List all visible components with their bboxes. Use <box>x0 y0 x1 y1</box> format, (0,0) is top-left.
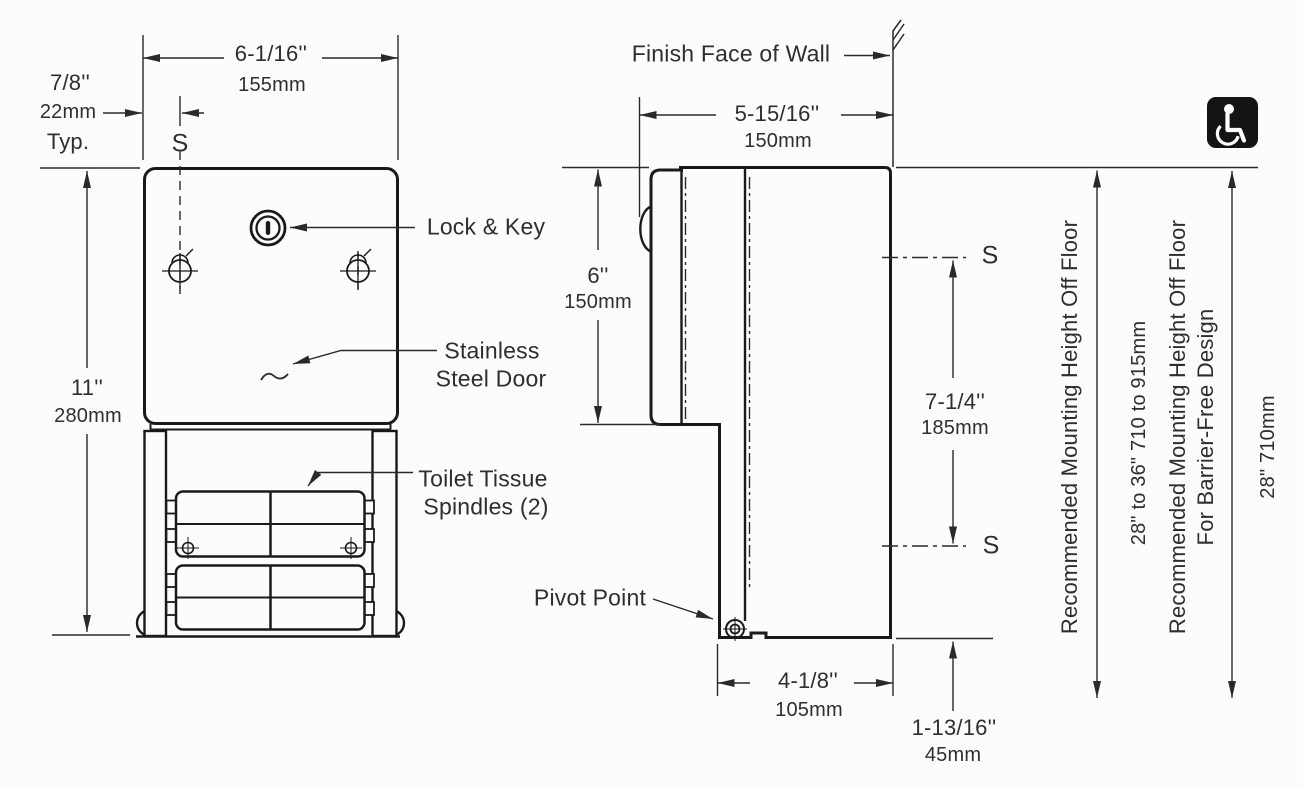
side-depth-inches: 5-15/16'' <box>735 103 820 125</box>
spindle-spacing-inches: 7-1/4'' <box>925 391 985 413</box>
front-width-metric: 155mm <box>238 75 306 95</box>
lower-depth-inches: 4-1/8'' <box>778 670 838 692</box>
mounting-standard-label: Recommended Mounting Height Off Floor <box>1059 220 1081 634</box>
wall-hatch <box>893 20 904 167</box>
wheelchair-accessibility-icon <box>1207 97 1258 148</box>
mounting-barrier-free-label-line1: Recommended Mounting Height Off Floor <box>1167 220 1189 634</box>
front-height-inches: 11'' <box>71 377 103 399</box>
front-offset-typ: Typ. <box>47 131 89 153</box>
mounting-barrier-free-range: 28" 710mm <box>1258 395 1278 498</box>
door-front-outline <box>145 169 398 424</box>
lock-key-label: Lock & Key <box>427 216 545 239</box>
door-label-line2: Steel Door <box>436 368 547 391</box>
lock-icon <box>251 211 285 245</box>
spindles-label-line1: Toilet Tissue <box>418 468 547 491</box>
side-s-upper: S <box>982 244 999 269</box>
front-offset-metric: 22mm <box>40 102 96 122</box>
front-view-drawing <box>136 151 404 637</box>
lower-depth-metric: 105mm <box>775 700 843 720</box>
front-offset-inches: 7/8'' <box>50 72 90 94</box>
front-width-inches: 6-1/16'' <box>235 43 307 65</box>
front-height-metric: 280mm <box>54 406 122 426</box>
bottom-offset-inches: 1-13/16'' <box>912 717 997 739</box>
side-s-lower: S <box>983 534 1000 559</box>
side-upper-height-inches: 6'' <box>587 265 608 287</box>
side-depth-metric: 150mm <box>744 131 812 151</box>
bottom-offset-metric: 45mm <box>925 745 981 765</box>
mounting-barrier-free-label-line2: For Barrier-Free Design <box>1195 309 1217 546</box>
side-upper-height-metric: 150mm <box>564 292 632 312</box>
front-centerline-s: S <box>172 132 189 157</box>
pivot-point-label: Pivot Point <box>534 587 646 610</box>
spindles-label-line2: Spindles (2) <box>423 496 548 519</box>
door-label-line1: Stainless <box>444 340 539 363</box>
finish-face-of-wall-label: Finish Face of Wall <box>632 43 831 66</box>
drawing-linework <box>0 0 1303 788</box>
spec-drawing-page: 6-1/16'' 155mm 7/8'' 22mm Typ. S 11'' 28… <box>0 0 1303 788</box>
toilet-tissue-spindles <box>176 492 365 630</box>
mounting-standard-range: 28" to 36" 710 to 915mm <box>1129 321 1149 546</box>
spindle-spacing-metric: 185mm <box>921 418 989 438</box>
side-view-dimensions <box>562 56 993 712</box>
